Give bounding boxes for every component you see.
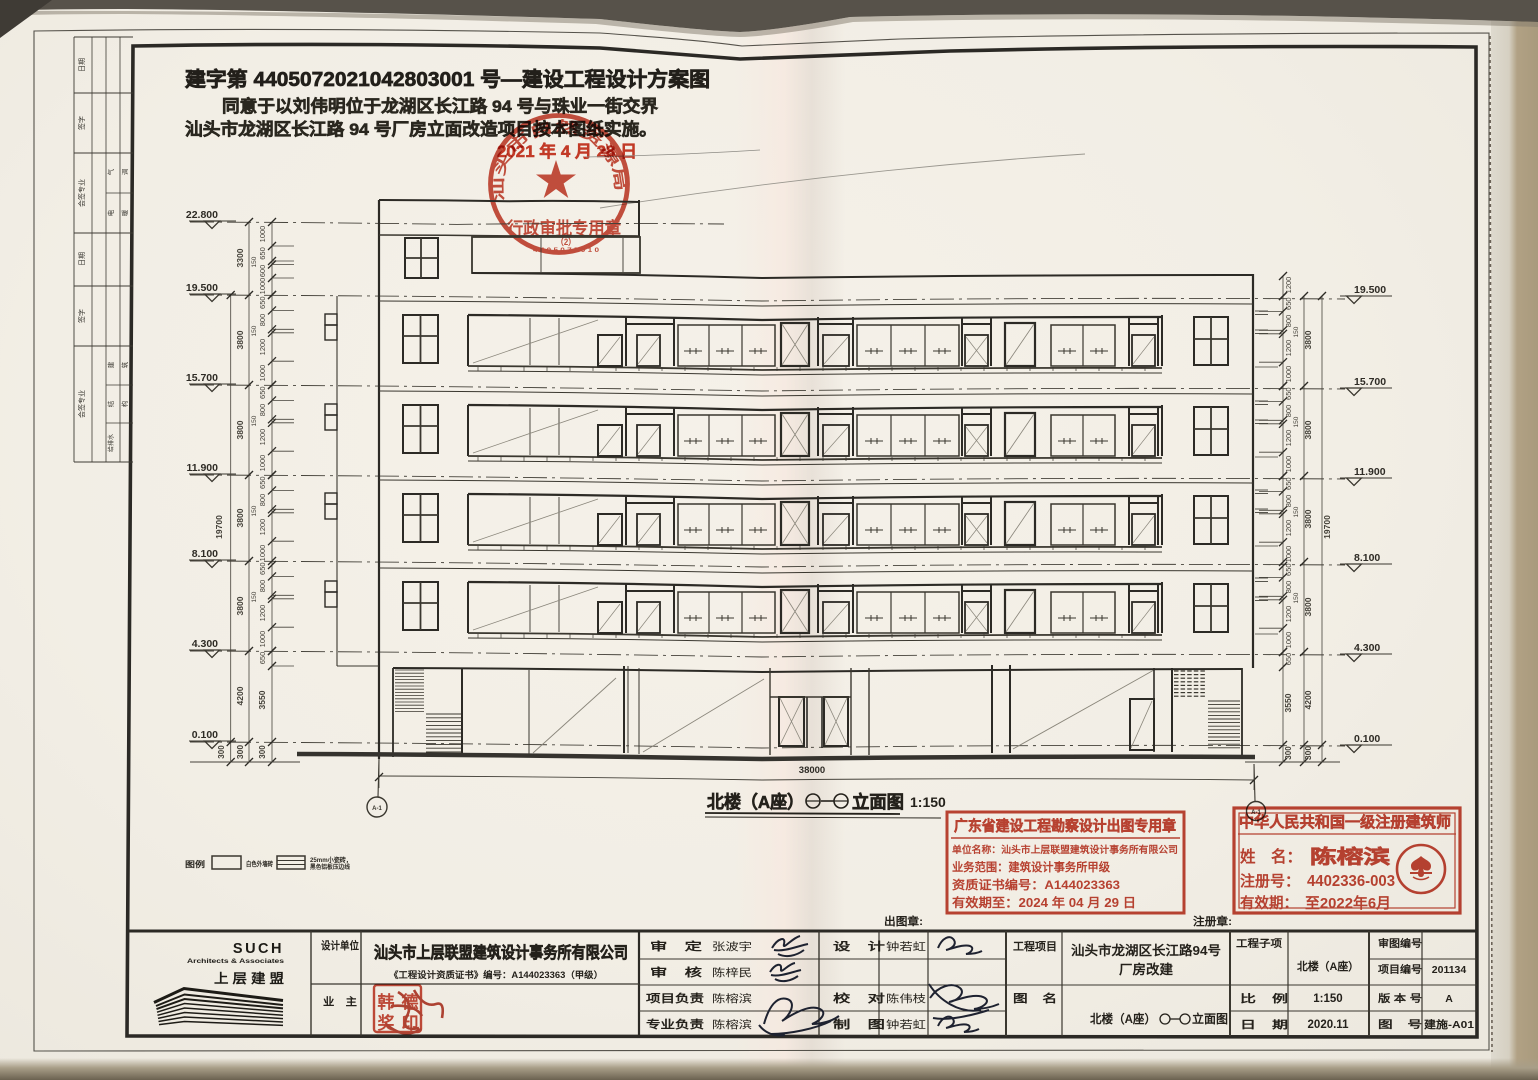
- svg-text:版 本 号: 版 本 号: [1378, 992, 1422, 1005]
- svg-text:4200: 4200: [1303, 690, 1313, 709]
- svg-text:3550: 3550: [257, 690, 267, 709]
- svg-text:北楼（A座）: 北楼（A座）: [1090, 1011, 1156, 1026]
- svg-text:4402336-003: 4402336-003: [1307, 873, 1395, 890]
- svg-text:4.300: 4.300: [1354, 642, 1380, 654]
- svg-text:1200: 1200: [258, 429, 267, 446]
- svg-text:800: 800: [258, 494, 267, 507]
- svg-text:1000: 1000: [258, 365, 267, 382]
- svg-text:300: 300: [1303, 746, 1313, 760]
- svg-text:审 定: 审 定: [650, 939, 702, 953]
- svg-text:0.100: 0.100: [1354, 733, 1380, 745]
- svg-text:建施-A01: 建施-A01: [1423, 1018, 1474, 1031]
- svg-text:650: 650: [258, 476, 267, 489]
- svg-text:1200: 1200: [258, 339, 267, 356]
- svg-text:筑: 筑: [120, 361, 129, 368]
- svg-text:日期: 日期: [78, 58, 86, 72]
- svg-text:《工程设计资质证书》编号：A144023363（甲级）: 《工程设计资质证书》编号：A144023363（甲级）: [389, 969, 603, 980]
- svg-text:给排水: 给排水: [107, 434, 115, 452]
- svg-text:1:150: 1:150: [1313, 993, 1342, 1005]
- svg-text:25mm小瓷砖，: 25mm小瓷砖，: [310, 855, 352, 864]
- svg-text:3800: 3800: [1303, 330, 1313, 349]
- svg-text:陈伟枝: 陈伟枝: [886, 992, 927, 1005]
- svg-text:1000: 1000: [1284, 456, 1293, 473]
- svg-text:资质证书编号：A144023363: 资质证书编号：A144023363: [952, 877, 1120, 892]
- svg-text:150: 150: [251, 256, 258, 267]
- svg-text:审 核: 审 核: [650, 965, 702, 979]
- svg-text:建: 建: [106, 361, 115, 368]
- svg-text:650: 650: [258, 247, 267, 260]
- svg-text:有效期至：2024 年 04 月 29 日: 有效期至：2024 年 04 月 29 日: [952, 895, 1136, 910]
- svg-text:150: 150: [1293, 506, 1300, 517]
- svg-text:广东省建设工程勘察设计出图专用章: 广东省建设工程勘察设计出图专用章: [954, 817, 1176, 835]
- svg-text:150: 150: [1293, 326, 1300, 337]
- svg-text:SUCH: SUCH: [233, 941, 284, 957]
- svg-text:11.900: 11.900: [186, 462, 218, 474]
- svg-text:650: 650: [1284, 477, 1293, 490]
- svg-text:北楼（A座）: 北楼（A座）: [707, 792, 804, 812]
- svg-text:有效期：: 有效期：: [1240, 894, 1298, 912]
- svg-text:1200: 1200: [1284, 606, 1293, 623]
- svg-text:150: 150: [251, 415, 258, 426]
- svg-text:1000: 1000: [1284, 366, 1293, 383]
- svg-text:800: 800: [258, 314, 267, 327]
- svg-text:专业负责: 专业负责: [646, 1017, 704, 1031]
- svg-text:4.300: 4.300: [192, 638, 218, 650]
- svg-text:300: 300: [217, 745, 226, 759]
- svg-text:业务范围：建筑设计事务所甲级: 业务范围：建筑设计事务所甲级: [952, 860, 1110, 874]
- svg-text:800: 800: [258, 404, 267, 417]
- svg-text:Architects & Associates: Architects & Associates: [187, 958, 285, 965]
- svg-text:A: A: [1445, 993, 1453, 1005]
- svg-text:650: 650: [258, 296, 267, 309]
- svg-text:钟若虹: 钟若虹: [886, 940, 927, 953]
- svg-text:陈梓民: 陈梓民: [712, 966, 752, 979]
- svg-text:3550: 3550: [1283, 693, 1293, 712]
- svg-text:注册章:: 注册章:: [1193, 914, 1232, 928]
- svg-text:300: 300: [258, 745, 267, 759]
- svg-text:至2022年6月: 至2022年6月: [1305, 894, 1391, 912]
- svg-text:1000: 1000: [258, 631, 267, 648]
- svg-text:注册号：: 注册号：: [1240, 872, 1300, 890]
- svg-text:19.500: 19.500: [1354, 284, 1386, 296]
- svg-text:黑色铝板压边线: 黑色铝板压边线: [310, 863, 350, 871]
- svg-text:0.100: 0.100: [192, 729, 218, 741]
- svg-text:单位名称：汕头市上层联盟建筑设计事务所有限公司: 单位名称：汕头市上层联盟建筑设计事务所有限公司: [952, 844, 1178, 856]
- svg-text:陈榕滨: 陈榕滨: [712, 1018, 753, 1031]
- svg-text:22.800: 22.800: [186, 209, 218, 221]
- svg-text:汕头市龙湖区长江路94号: 汕头市龙湖区长江路94号: [1071, 943, 1221, 958]
- svg-text:3800: 3800: [235, 420, 245, 439]
- svg-text:800: 800: [258, 580, 267, 593]
- svg-text:建字第 4405072021042803001 号—建设工程: 建字第 4405072021042803001 号—建设工程设计方案图: [185, 67, 710, 91]
- svg-text:会签专业: 会签专业: [77, 390, 86, 418]
- svg-text:650: 650: [1284, 563, 1293, 576]
- svg-text:气: 气: [106, 168, 115, 175]
- svg-text:项目负责: 项目负责: [646, 991, 704, 1005]
- svg-text:立面图: 立面图: [852, 792, 904, 812]
- svg-text:上 层 建 盟: 上 层 建 盟: [214, 971, 284, 986]
- svg-text:3800: 3800: [235, 596, 245, 615]
- svg-text:构: 构: [120, 400, 129, 407]
- svg-text:（2）: （2）: [556, 237, 576, 247]
- svg-text:3800: 3800: [235, 508, 245, 527]
- svg-text:800: 800: [1284, 405, 1293, 418]
- svg-text:650: 650: [258, 652, 267, 665]
- svg-text:19700: 19700: [1322, 515, 1332, 539]
- svg-text:2020.11: 2020.11: [1308, 1019, 1350, 1031]
- svg-text:150: 150: [251, 325, 258, 336]
- svg-text:300: 300: [1284, 746, 1293, 760]
- svg-text:3800: 3800: [1303, 509, 1313, 528]
- svg-text:图例: 图例: [185, 859, 205, 869]
- svg-text:150: 150: [1293, 416, 1300, 427]
- svg-text:工程项目: 工程项目: [1013, 939, 1057, 953]
- svg-text:4200: 4200: [235, 686, 245, 705]
- svg-text:调: 调: [120, 169, 129, 176]
- svg-text:1000: 1000: [258, 278, 267, 295]
- svg-text:电: 电: [106, 209, 115, 216]
- svg-text:图 号: 图 号: [1378, 1019, 1422, 1031]
- svg-text:签字: 签字: [77, 309, 86, 323]
- svg-text:650: 650: [1284, 297, 1293, 310]
- svg-text:4 4 0 5 0 7 5 0 1 0: 4 4 0 5 0 7 5 0 1 0: [533, 248, 600, 254]
- svg-text:比 例: 比 例: [1240, 992, 1288, 1005]
- svg-text:张波宇: 张波宇: [712, 940, 752, 953]
- svg-text:汕头市上层联盟建筑设计事务所有限公司: 汕头市上层联盟建筑设计事务所有限公司: [374, 943, 628, 962]
- svg-text:3300: 3300: [235, 248, 245, 267]
- svg-text:1200: 1200: [258, 605, 267, 622]
- svg-text:钟若虹: 钟若虹: [886, 1018, 927, 1031]
- svg-text:工程子项: 工程子项: [1236, 937, 1282, 950]
- svg-text:项目编号: 项目编号: [1378, 963, 1422, 976]
- svg-text:300: 300: [235, 745, 245, 759]
- svg-text:3800: 3800: [235, 330, 245, 349]
- svg-text:1200: 1200: [1284, 520, 1293, 537]
- svg-text:1000: 1000: [258, 545, 267, 562]
- svg-text:结: 结: [106, 400, 115, 407]
- svg-text:暖: 暖: [121, 209, 129, 216]
- svg-text:日期: 日期: [78, 252, 86, 266]
- svg-text:3800: 3800: [1303, 597, 1313, 616]
- svg-text:日 期: 日 期: [1240, 1018, 1288, 1031]
- svg-text:650: 650: [1284, 653, 1293, 666]
- svg-text:15.700: 15.700: [1354, 376, 1386, 388]
- svg-text:陈榕滨: 陈榕滨: [712, 992, 753, 1005]
- svg-text:签字: 签字: [77, 116, 86, 130]
- svg-text:出图章:: 出图章:: [884, 914, 923, 928]
- svg-text:厂房改建: 厂房改建: [1119, 962, 1173, 977]
- svg-text:校 对: 校 对: [833, 991, 885, 1005]
- svg-text:1:150: 1:150: [910, 794, 946, 810]
- svg-text:11.900: 11.900: [1354, 466, 1386, 478]
- svg-text:1200: 1200: [258, 519, 267, 536]
- svg-text:中华人民共和国一级注册建筑师: 中华人民共和国一级注册建筑师: [1239, 813, 1451, 831]
- svg-text:北楼（A座）: 北楼（A座）: [1297, 959, 1359, 973]
- svg-text:8.100: 8.100: [1354, 552, 1380, 564]
- svg-text:设计单位: 设计单位: [321, 939, 359, 952]
- svg-text:3800: 3800: [1303, 420, 1313, 439]
- svg-text:201134: 201134: [1432, 964, 1467, 976]
- svg-text:650: 650: [258, 562, 267, 575]
- svg-text:制 图: 制 图: [833, 1017, 885, 1031]
- svg-text:图 名: 图 名: [1013, 991, 1057, 1005]
- svg-text:650: 650: [1284, 387, 1293, 400]
- svg-text:800: 800: [1284, 581, 1293, 594]
- svg-text:白色外墙砖: 白色外墙砖: [246, 859, 273, 868]
- svg-text:姓 名：: 姓 名：: [1240, 847, 1302, 866]
- svg-text:150: 150: [251, 591, 258, 602]
- svg-text:1200: 1200: [1284, 430, 1293, 447]
- svg-text:陈榕滨: 陈榕滨: [1310, 845, 1390, 868]
- svg-text:1200: 1200: [1284, 340, 1293, 357]
- svg-text:会签专业: 会签专业: [77, 179, 86, 207]
- svg-text:19.500: 19.500: [186, 282, 218, 294]
- svg-text:设 计: 设 计: [833, 939, 885, 953]
- svg-text:8.100: 8.100: [192, 548, 218, 560]
- svg-text:150: 150: [251, 505, 258, 516]
- svg-text:审图编号: 审图编号: [1378, 937, 1422, 950]
- svg-text:1000: 1000: [258, 226, 267, 243]
- svg-text:1200: 1200: [1284, 277, 1293, 294]
- svg-text:韩: 韩: [378, 992, 395, 1012]
- svg-text:150: 150: [1293, 592, 1300, 603]
- svg-text:15.700: 15.700: [186, 372, 218, 384]
- svg-text:A-1: A-1: [372, 806, 382, 812]
- svg-text:600: 600: [258, 265, 267, 278]
- svg-text:立面图: 立面图: [1192, 1011, 1228, 1026]
- svg-text:19700: 19700: [214, 515, 224, 539]
- svg-text:650: 650: [258, 386, 267, 399]
- svg-text:800: 800: [1284, 315, 1293, 328]
- svg-text:业 主: 业 主: [323, 995, 358, 1008]
- svg-text:同意于以刘伟明位于龙湖区长江路 94 号与珠业一街交界: 同意于以刘伟明位于龙湖区长江路 94 号与珠业一街交界: [222, 96, 658, 116]
- svg-text:38000: 38000: [799, 765, 825, 776]
- svg-text:800: 800: [1284, 495, 1293, 508]
- svg-text:1000: 1000: [258, 455, 267, 472]
- svg-text:1000: 1000: [1284, 632, 1293, 649]
